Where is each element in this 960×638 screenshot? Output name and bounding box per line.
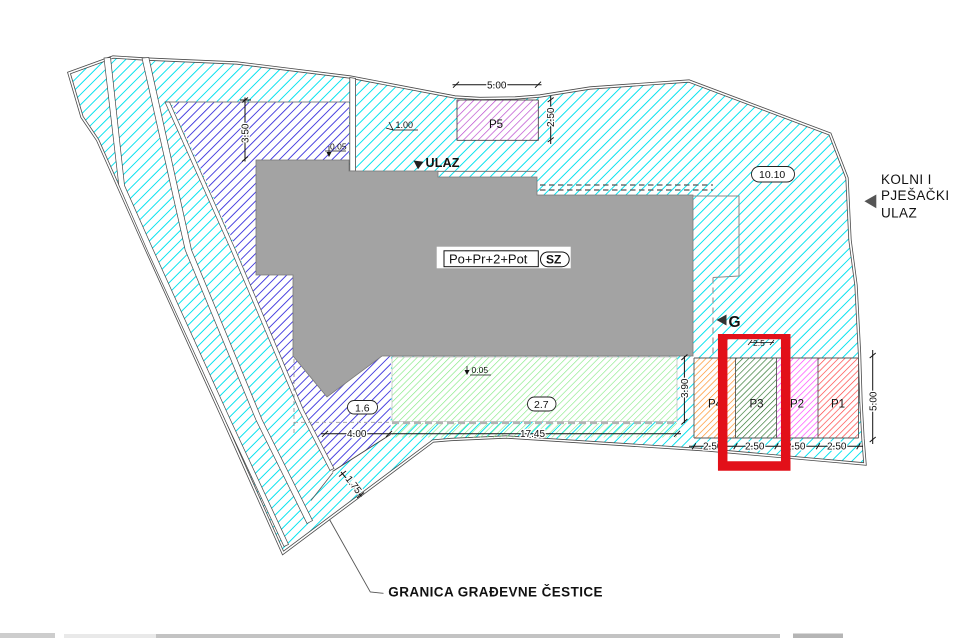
svg-text:ULAZ: ULAZ <box>881 206 917 221</box>
svg-text:0.05: 0.05 <box>472 365 489 375</box>
svg-text:2.50: 2.50 <box>745 442 765 453</box>
svg-text:SZ: SZ <box>546 253 561 267</box>
svg-text:P3: P3 <box>750 399 764 411</box>
svg-text:KOLNI I: KOLNI I <box>881 172 932 187</box>
svg-text:Po+Pr+2+Pot: Po+Pr+2+Pot <box>449 252 528 267</box>
svg-text:ULAZ: ULAZ <box>426 156 460 170</box>
svg-text:P5: P5 <box>489 119 503 131</box>
svg-text:2.50: 2.50 <box>827 442 847 453</box>
svg-text:2.7: 2.7 <box>534 399 549 411</box>
svg-text:P2: P2 <box>790 399 804 411</box>
svg-text:17.45: 17.45 <box>520 429 545 440</box>
svg-text:4.00: 4.00 <box>347 429 367 440</box>
svg-text:1.6: 1.6 <box>355 403 370 415</box>
svg-text:10.10: 10.10 <box>759 169 785 181</box>
svg-text:0.05: 0.05 <box>330 142 347 152</box>
svg-text:2.5: 2.5 <box>753 338 765 348</box>
svg-text:2.50: 2.50 <box>546 107 557 127</box>
svg-text:5.00: 5.00 <box>869 391 880 411</box>
svg-text:P1: P1 <box>831 399 845 411</box>
svg-text:PJEŠAČKI: PJEŠAČKI <box>881 188 949 203</box>
svg-text:G: G <box>729 314 741 331</box>
svg-text:GRANICA GRAĐEVNE ČESTICE: GRANICA GRAĐEVNE ČESTICE <box>388 585 603 600</box>
svg-text:5.00: 5.00 <box>487 81 507 92</box>
svg-text:3.50: 3.50 <box>241 123 252 143</box>
svg-text:3.90: 3.90 <box>680 378 691 398</box>
svg-text:1.00: 1.00 <box>396 120 414 130</box>
